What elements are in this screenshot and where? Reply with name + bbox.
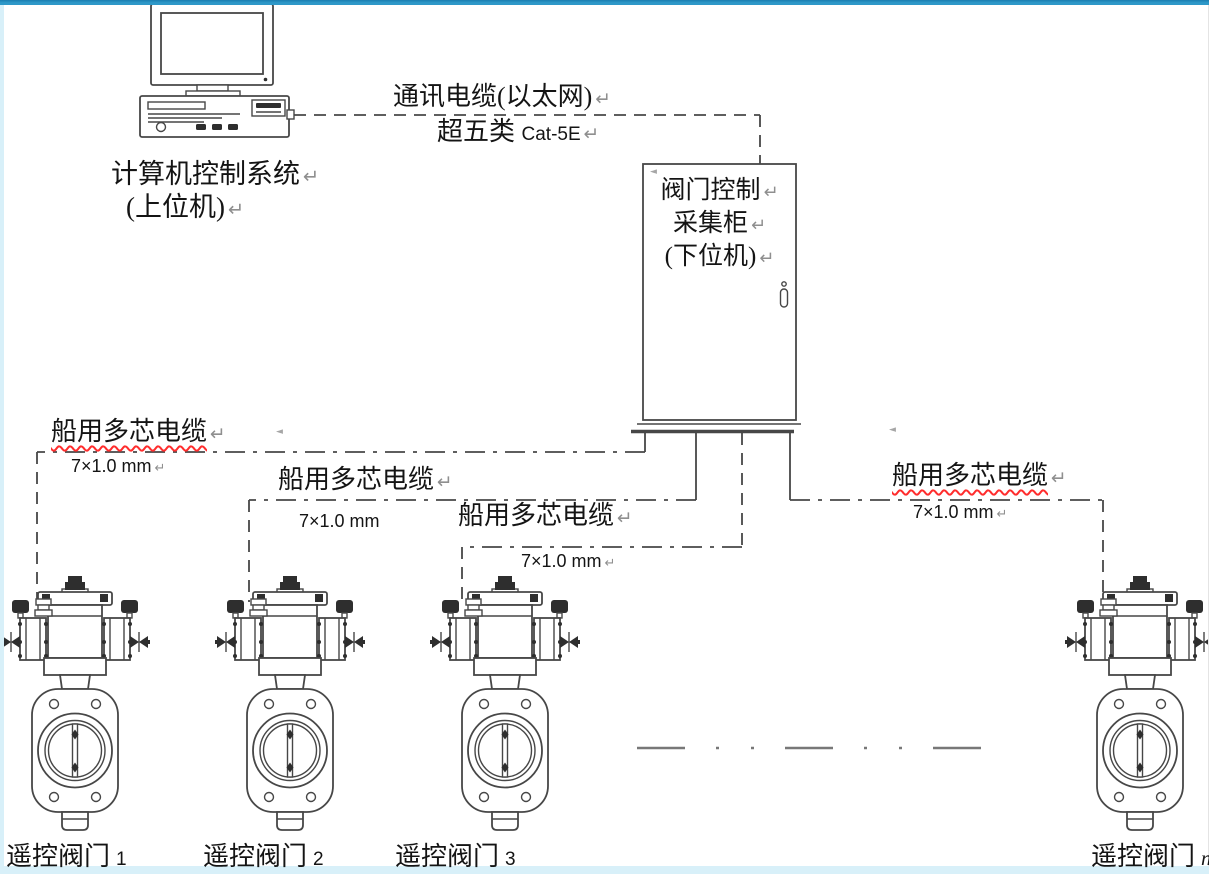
control-cabinet xyxy=(631,164,801,432)
marine-cable-spec-1: 7×1.0 mm↵ xyxy=(71,456,165,477)
ethernet-cable-text: 通讯电缆(以太网) xyxy=(393,82,592,111)
pilcrow-mark: ↵ xyxy=(1051,468,1067,489)
valve-label-text-1: 遥控阀门 xyxy=(6,842,110,871)
spec-text-1: 7×1.0 mm xyxy=(71,456,152,476)
anchor-mark: ◄ xyxy=(889,425,896,435)
valve-label-text-n: 遥控阀门 xyxy=(1091,842,1195,871)
valve-label-2: 遥控阀门2 xyxy=(203,836,324,873)
marine-cable-label-3: 船用多芯电缆↵ xyxy=(458,502,633,530)
document-page: 计算机控制系统↵ (上位机)↵ 通讯电缆(以太网)↵ 超五类 Cat-5E↵ 阀… xyxy=(0,0,1209,874)
marine-cable-text-3: 船用多芯电缆 xyxy=(458,501,614,530)
cabinet-label-line2: 采集柜↵ xyxy=(643,210,796,237)
computer-label-text1: 计算机控制系统 xyxy=(111,159,300,189)
marine-cable-spec-2: 7×1.0 mm xyxy=(299,511,380,532)
spec-text-3: 7×1.0 mm xyxy=(521,551,602,571)
spec-text-2: 7×1.0 mm xyxy=(299,511,380,531)
pilcrow-mark: ↵ xyxy=(437,472,453,493)
marine-cable-label-1: 船用多芯电缆↵ xyxy=(51,418,226,446)
pilcrow-mark: ↵ xyxy=(584,124,600,145)
marine-cable-text-1: 船用多芯电缆 xyxy=(51,417,207,446)
pilcrow-mark: ↵ xyxy=(210,424,226,445)
cabinet-label-line3: (下位机)↵ xyxy=(643,243,796,270)
computer-label-line2: (上位机)↵ xyxy=(126,193,244,222)
cabinet-label-line1: 阀门控制↵ xyxy=(643,177,796,204)
valve-number-2: 2 xyxy=(313,849,324,870)
cabinet-text1: 阀门控制 xyxy=(660,177,760,204)
pilcrow-mark: ↵ xyxy=(605,556,616,571)
anchor-mark: ◄ xyxy=(276,427,283,437)
cat5e-en-text: Cat-5E xyxy=(522,124,581,145)
pilcrow-mark: ↵ xyxy=(997,507,1008,522)
computer-drawing xyxy=(140,4,294,137)
marine-cable-label-2: 船用多芯电缆↵ xyxy=(278,466,453,494)
document-bottom-border xyxy=(0,866,1209,874)
marine-cable-label-4: 船用多芯电缆↵ xyxy=(892,462,1067,490)
anchor-mark: ◄ xyxy=(650,167,657,177)
pilcrow-mark: ↵ xyxy=(759,248,774,269)
pilcrow-mark: ↵ xyxy=(763,182,778,203)
cat5e-cn-text: 超五类 xyxy=(437,117,515,146)
valve-label-3: 遥控阀门3 xyxy=(395,836,516,873)
valve-number-n: n xyxy=(1201,846,1209,870)
valve-number-3: 3 xyxy=(505,849,516,870)
marine-cable-spec-4: 7×1.0 mm↵ xyxy=(913,502,1007,523)
cabinet-handle xyxy=(781,289,788,307)
ethernet-cable-label-line2: 超五类 Cat-5E↵ xyxy=(437,118,599,146)
valve-label-text-3: 遥控阀门 xyxy=(395,842,499,871)
pilcrow-mark: ↵ xyxy=(303,165,319,188)
cabinet-text3: (下位机) xyxy=(665,243,757,270)
document-top-border xyxy=(0,0,1209,5)
valve-number-1: 1 xyxy=(116,849,127,870)
computer-label-text2: (上位机) xyxy=(126,192,225,222)
document-left-border xyxy=(0,5,4,874)
pilcrow-mark: ↵ xyxy=(595,89,611,110)
valve-label-text-2: 遥控阀门 xyxy=(203,842,307,871)
pilcrow-mark: ↵ xyxy=(751,215,766,236)
pilcrow-mark: ↵ xyxy=(155,461,166,476)
valve-n xyxy=(1065,576,1209,830)
cabinet-text2: 采集柜 xyxy=(673,210,748,237)
marine-cable-spec-3: 7×1.0 mm↵ xyxy=(521,551,615,572)
valve-label-n: 遥控阀门n xyxy=(1091,836,1209,873)
valve-3 xyxy=(430,576,580,830)
valve-1 xyxy=(0,576,150,830)
pilcrow-mark: ↵ xyxy=(617,508,633,529)
valve-2 xyxy=(215,576,365,830)
pilcrow-mark: ↵ xyxy=(228,198,244,221)
marine-cable-text-2: 船用多芯电缆 xyxy=(278,465,434,494)
spec-text-4: 7×1.0 mm xyxy=(913,502,994,522)
valve-label-1: 遥控阀门1 xyxy=(6,836,127,873)
cabinet-handle-dot xyxy=(782,282,786,286)
computer-label-line1: 计算机控制系统↵ xyxy=(111,160,319,189)
ethernet-cable-label-line1: 通讯电缆(以太网)↵ xyxy=(393,83,611,111)
marine-cable-text-4: 船用多芯电缆 xyxy=(892,461,1048,490)
